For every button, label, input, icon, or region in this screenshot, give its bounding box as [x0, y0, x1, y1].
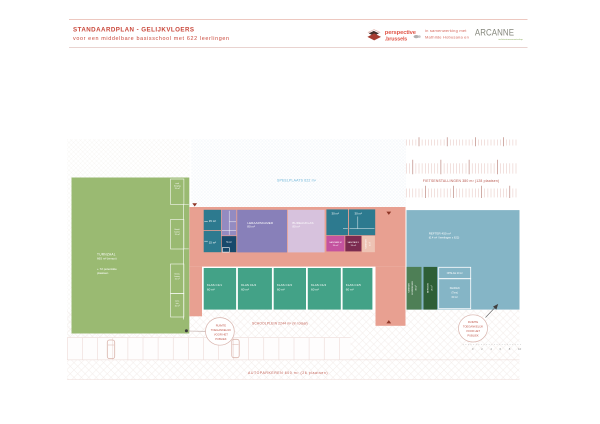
svg-text:10: 10	[518, 347, 522, 351]
svg-text:VOOR HET: VOOR HET	[214, 333, 228, 337]
svg-text:15 m²: 15 m²	[209, 240, 216, 244]
svg-text:60 m²: 60 m²	[277, 287, 285, 291]
svg-text:(0.4 m² / leerlingen x 622): (0.4 m² / leerlingen x 622)	[429, 236, 460, 240]
svg-text:RUIMTE: RUIMTE	[216, 324, 227, 328]
svg-text:60 m²: 60 m²	[346, 287, 354, 291]
svg-text:(Tnm): (Tnm)	[452, 291, 459, 294]
svg-text:30 m²: 30 m²	[355, 211, 362, 215]
svg-text:15 m²: 15 m²	[333, 244, 339, 247]
svg-text:KEUKEN: KEUKEN	[450, 287, 460, 290]
svg-text:BERGING: BERGING	[427, 283, 429, 293]
svg-text:REFTER 450 m²: REFTER 450 m²	[429, 232, 451, 236]
svg-text:FIETSENSTALLINGEN 380 m² (128: FIETSENSTALLINGEN 380 m² (128 plaatsen)	[423, 179, 499, 183]
svg-text:15 m²: 15 m²	[351, 244, 357, 247]
svg-text:80 m²: 80 m²	[247, 225, 255, 229]
svg-text:80 m²: 80 m²	[292, 225, 300, 229]
svg-text:60 m²: 60 m²	[207, 287, 215, 291]
svg-text:30 m²: 30 m²	[415, 285, 418, 291]
svg-text:RUIMTE: RUIMTE	[468, 320, 479, 324]
svg-text:10 m²: 10 m²	[175, 305, 180, 308]
svg-text:SANITAIR M: SANITAIR M	[329, 241, 342, 244]
svg-text:PUBLIEK: PUBLIEK	[215, 337, 227, 341]
svg-text:SANITAIR: SANITAIR	[365, 239, 368, 249]
svg-text:30 m²: 30 m²	[332, 211, 339, 215]
svg-text:STANDAARDPLAN - GELIJKVLOERS: STANDAARDPLAN - GELIJKVLOERS	[73, 26, 194, 33]
svg-text:665 m² (renov): 665 m² (renov)	[97, 256, 117, 260]
svg-text:15 m²: 15 m²	[175, 187, 180, 190]
svg-text:Mathilde Hobusana en: Mathilde Hobusana en	[425, 34, 469, 39]
svg-text:5 m²: 5 m²	[369, 242, 372, 246]
svg-text:LEVERINGEN: LEVERINGEN	[412, 281, 414, 295]
svg-text:15 m²: 15 m²	[175, 278, 180, 281]
svg-text:60 m²: 60 m²	[311, 287, 319, 291]
svg-text:60 m²: 60 m²	[241, 287, 249, 291]
svg-text:SANITAIR J: SANITAIR J	[347, 241, 359, 244]
svg-text:15 m²: 15 m²	[209, 219, 216, 223]
svg-text:25 m²: 25 m²	[430, 285, 433, 291]
svg-text:plaatsen: plaatsen	[97, 271, 109, 275]
svg-text:architectenvennootschap: architectenvennootschap	[498, 38, 523, 41]
svg-text:5 m²: 5 m²	[226, 240, 231, 244]
svg-text:perspective: perspective	[385, 30, 417, 36]
svg-text:tair: tair	[176, 302, 179, 305]
svg-text:SCHOOLPLEIN 2244 m² (in totaal: SCHOOLPLEIN 2244 m² (in totaal)	[252, 321, 308, 325]
svg-text:OPSLAG 20 m²: OPSLAG 20 m²	[447, 272, 463, 275]
svg-text:AUTOPARKEREN 600 m² (26 plaats: AUTOPARKEREN 600 m² (26 plaatsen)	[248, 371, 328, 375]
svg-text:SANITAIR: SANITAIR	[408, 283, 411, 293]
svg-text:.brussels: .brussels	[385, 36, 408, 42]
svg-text:voor een middelbare basisschoo: voor een middelbare basisschool met 622 …	[73, 36, 230, 42]
svg-text:60 m²: 60 m²	[452, 296, 458, 299]
svg-text:TOEGANKELIJK: TOEGANKELIJK	[463, 325, 483, 329]
svg-text:ARCANNE: ARCANNE	[475, 27, 514, 38]
svg-text:in samenwerking met: in samenwerking met	[425, 28, 467, 33]
svg-text:PUBLIEK: PUBLIEK	[467, 334, 479, 338]
svg-text:SPEELPLAATS 622 m²: SPEELPLAATS 622 m²	[277, 179, 317, 183]
svg-text:VOOR HET: VOOR HET	[466, 329, 480, 333]
svg-text:TOEGANKELIJK: TOEGANKELIJK	[211, 328, 231, 332]
svg-text:15 m²: 15 m²	[175, 233, 180, 236]
